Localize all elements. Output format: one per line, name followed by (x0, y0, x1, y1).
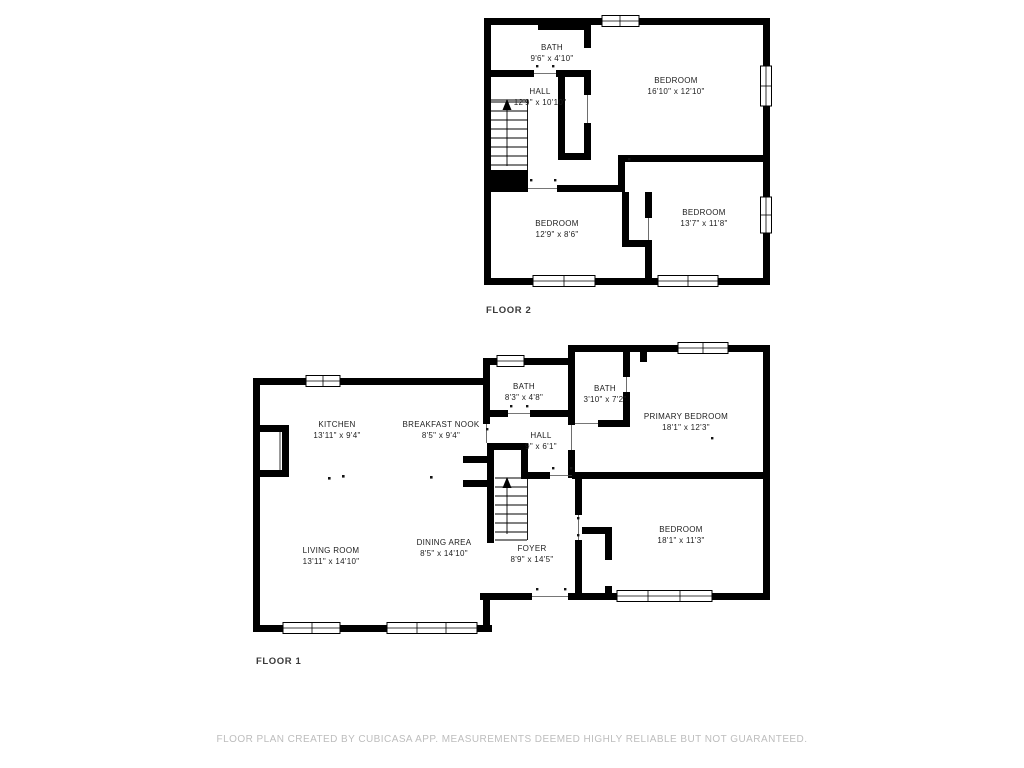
room-label-bedroom-large-f2: BEDROOM 16'10" x 12'10" (647, 75, 704, 97)
room-dims: 8'3" x 4'8" (505, 392, 543, 403)
room-name: BATH (505, 381, 543, 392)
room-dims: 13'7" x 11'8" (680, 218, 727, 229)
room-dims: 8'5" x 14'10" (417, 548, 472, 559)
room-name: BEDROOM (535, 218, 578, 229)
window (617, 591, 712, 602)
room-label-primary-bedroom: PRIMARY BEDROOM 18'1" x 12'3" (644, 411, 728, 433)
window (306, 376, 340, 387)
room-dims: 13'11" x 9'4" (313, 430, 360, 441)
window (761, 197, 772, 233)
window (283, 623, 340, 634)
room-dims: 12'9" x 10'10" (514, 97, 567, 108)
room-label-foyer: FOYER 8'9" x 14'5" (510, 543, 553, 565)
room-dims: 12'9" x 8'6" (535, 229, 578, 240)
window (497, 356, 524, 367)
room-name: PRIMARY BEDROOM (644, 411, 728, 422)
room-label-bath-f1: BATH 8'3" x 4'8" (505, 381, 543, 403)
room-dims: 9" x 6'1" (525, 441, 557, 452)
room-label-hall-f1: HALL 9" x 6'1" (525, 430, 557, 452)
room-name: HALL (525, 430, 557, 441)
floor-plan-canvas: BATH 9'6" x 4'10" HALL 12'9" x 10'10" BE… (0, 0, 1024, 768)
room-dims: 13'11" x 14'10" (303, 556, 360, 567)
footer-disclaimer: FLOOR PLAN CREATED BY CUBICASA APP. MEAS… (0, 734, 1024, 745)
stairs-up-arrow (503, 99, 512, 110)
floor2-caption: FLOOR 2 (486, 305, 531, 316)
room-dims: 8'5" x 9'4" (403, 430, 480, 441)
room-name: BEDROOM (657, 524, 704, 535)
room-name: HALL (514, 86, 567, 97)
room-name: BATH (530, 42, 573, 53)
floor1-stairs (495, 477, 528, 540)
room-label-kitchen: KITCHEN 13'11" x 9'4" (313, 419, 360, 441)
stairs-up-arrow (503, 477, 512, 488)
room-name: LIVING ROOM (303, 545, 360, 556)
room-name: BREAKFAST NOOK (403, 419, 480, 430)
room-label-hall-f2: HALL 12'9" x 10'10" (514, 86, 567, 108)
room-label-bedroom-right-f2: BEDROOM 13'7" x 11'8" (680, 207, 727, 229)
window (533, 276, 595, 287)
room-name: BATH (583, 383, 626, 394)
room-label-bath-f2: BATH 9'6" x 4'10" (530, 42, 573, 64)
room-dims: 8'9" x 14'5" (510, 554, 553, 565)
room-dims: 18'1" x 12'3" (644, 422, 728, 433)
room-dims: 9'6" x 4'10" (530, 53, 573, 64)
floor2-walls (484, 18, 770, 285)
floor1-caption: FLOOR 1 (256, 656, 301, 667)
window (678, 343, 728, 354)
door-marks (328, 65, 713, 590)
room-dims: 3'10" x 7'2" (583, 394, 626, 405)
room-name: DINING AREA (417, 537, 472, 548)
room-label-living-room: LIVING ROOM 13'11" x 14'10" (303, 545, 360, 567)
room-name: BEDROOM (680, 207, 727, 218)
room-dims: 16'10" x 12'10" (647, 86, 704, 97)
room-name: BEDROOM (647, 75, 704, 86)
room-name: KITCHEN (313, 419, 360, 430)
window (387, 623, 477, 634)
room-label-dining-area: DINING AREA 8'5" x 14'10" (417, 537, 472, 559)
room-label-breakfast-nook: BREAKFAST NOOK 8'5" x 9'4" (403, 419, 480, 441)
window (761, 66, 772, 106)
window (602, 16, 639, 27)
room-dims: 18'1" x 11'3" (657, 535, 704, 546)
room-label-bedroom-left-f2: BEDROOM 12'9" x 8'6" (535, 218, 578, 240)
room-label-bedroom-f1: BEDROOM 18'1" x 11'3" (657, 524, 704, 546)
window (658, 276, 718, 287)
room-label-bath-small-f1: BATH 3'10" x 7'2" (583, 383, 626, 405)
room-name: FOYER (510, 543, 553, 554)
